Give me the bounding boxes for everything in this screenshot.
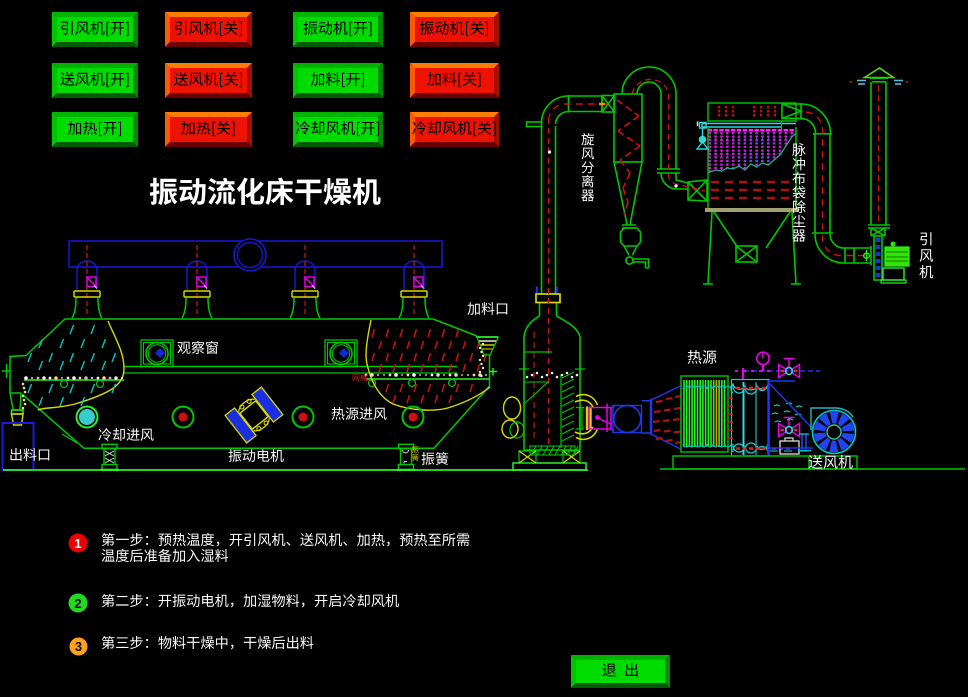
svg-text:3: 3	[75, 639, 82, 654]
svg-text:2: 2	[74, 596, 81, 611]
svg-text:1: 1	[74, 536, 81, 551]
